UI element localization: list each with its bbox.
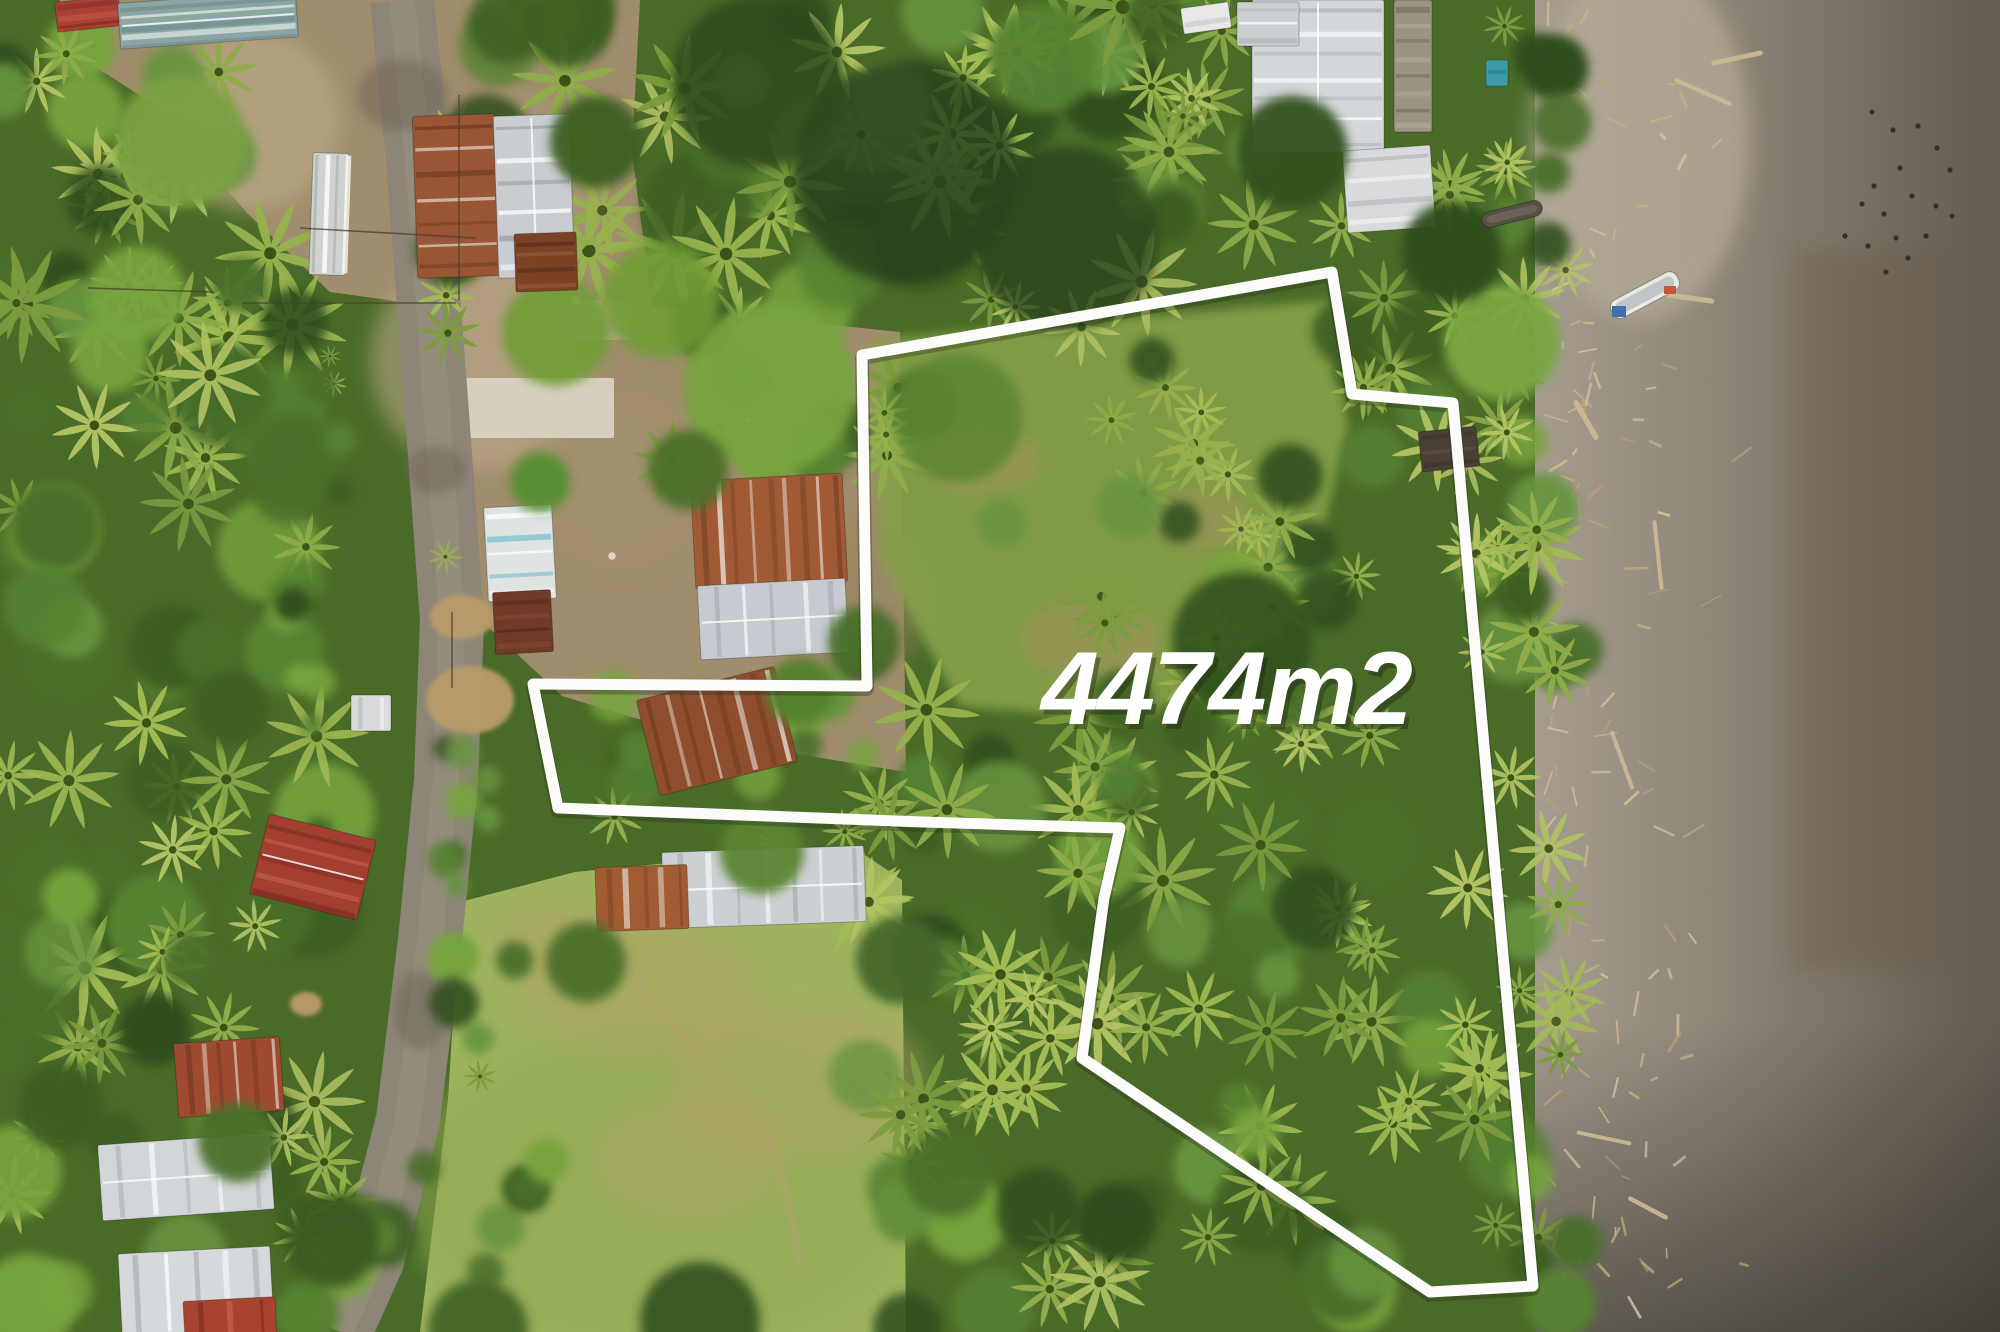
- house-top-rust: [412, 114, 500, 279]
- concrete-slab: [462, 378, 614, 438]
- mud-puddle: [426, 666, 514, 734]
- bldg-tr-wing: [1237, 2, 1299, 46]
- mud-puddle: [430, 595, 494, 639]
- tarp-teal: [1486, 60, 1508, 86]
- shed-rust-dark: [514, 232, 578, 292]
- beach: [1530, 0, 2000, 1332]
- palapa-thatch: [1394, 0, 1432, 132]
- house-teal-white: [484, 504, 557, 601]
- boat-cargo: [1664, 286, 1676, 294]
- house-bl2-red: [183, 1297, 277, 1332]
- roof-brown-dark: [492, 590, 553, 655]
- area-label: 4474m24474m2: [1039, 631, 1416, 752]
- mud-puddle: [290, 992, 322, 1016]
- area-label-text: 4474m2: [1039, 631, 1412, 747]
- scene-canvas: 4474m24474m2: [0, 0, 2000, 1332]
- boat-cargo: [1612, 306, 1626, 317]
- house-bottom-rust: [595, 864, 689, 931]
- aerial-property-photo: 4474m24474m2: [0, 0, 2000, 1332]
- shed-roadside-white: [309, 152, 352, 275]
- shack-white-road: [351, 695, 391, 731]
- barn-silver: [697, 578, 849, 660]
